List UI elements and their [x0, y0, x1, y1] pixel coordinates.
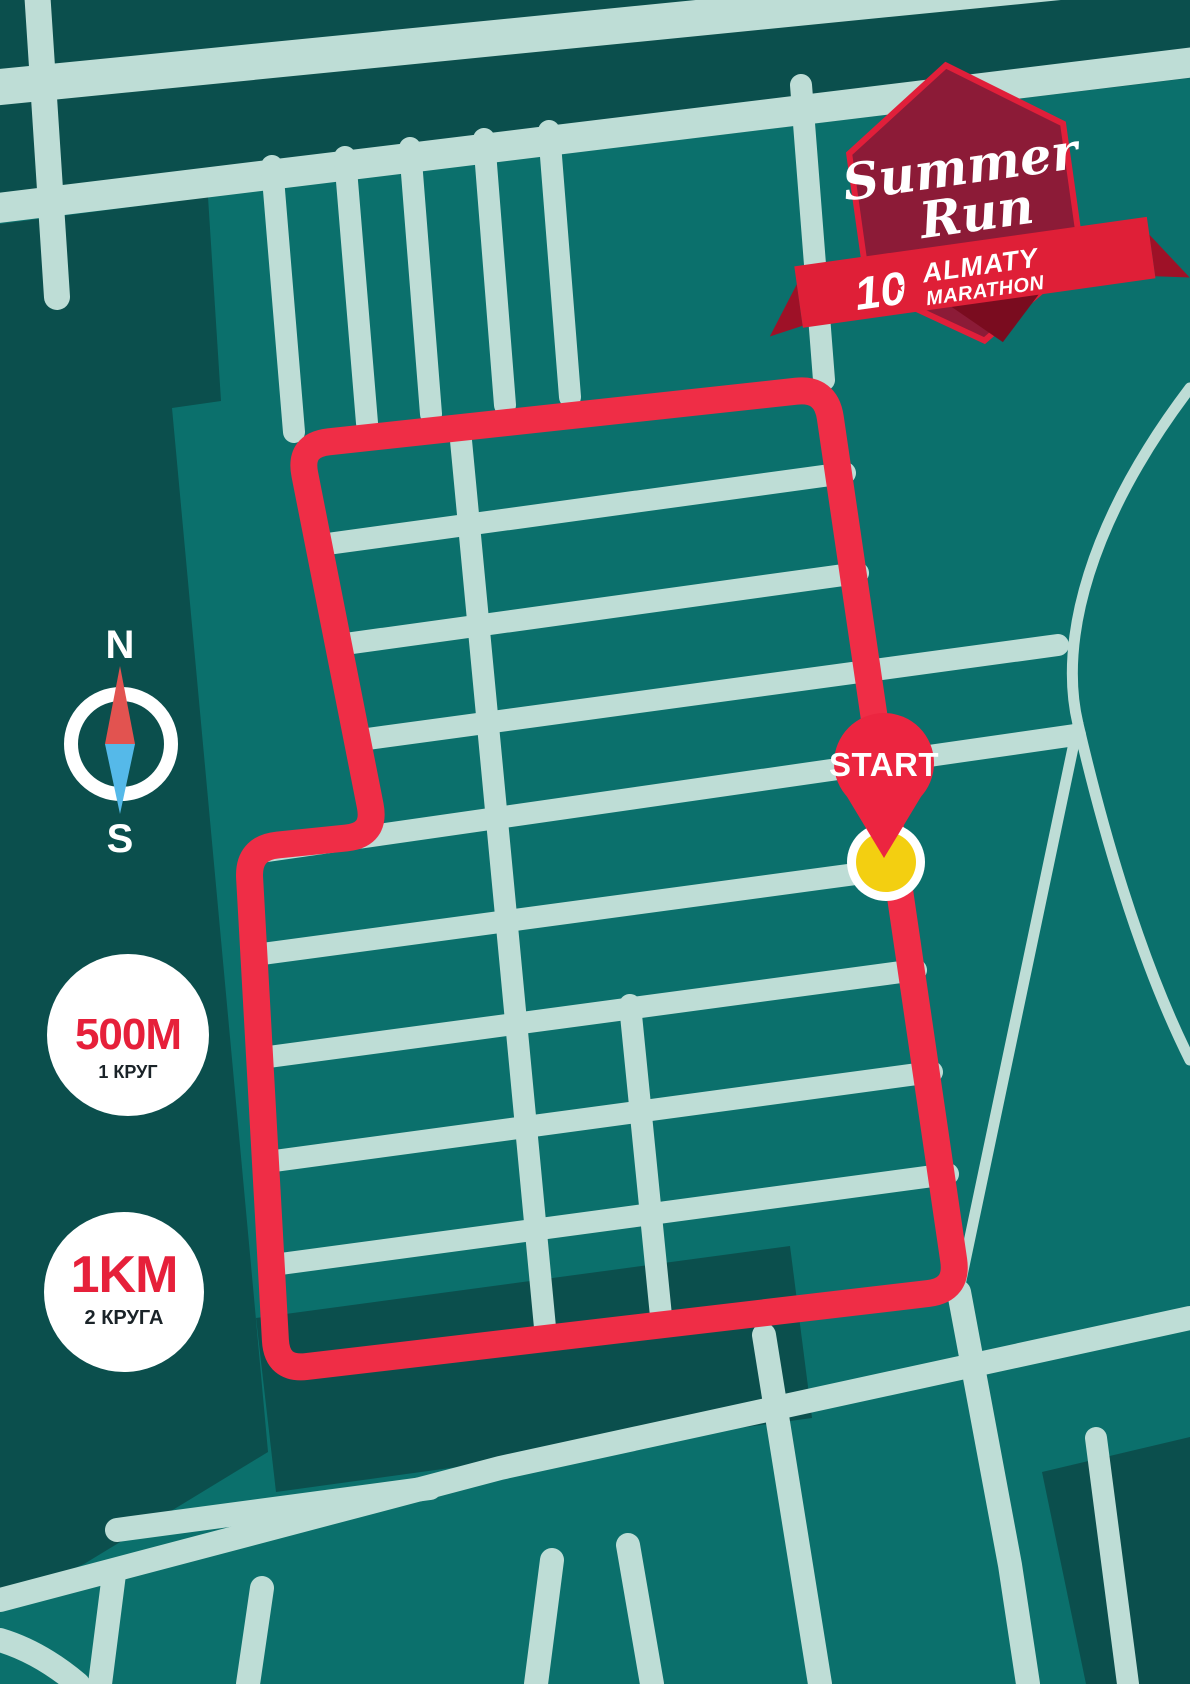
race-map-poster: START N S 500M 1 КРУГ 1KM 2 КРУГА Summer… — [0, 0, 1190, 1684]
badge-500m: 500M 1 КРУГ — [47, 954, 209, 1116]
start-pin-label: START — [829, 746, 939, 783]
badge-laps: 2 КРУГА — [85, 1307, 164, 1329]
badge-distance: 1KM — [71, 1246, 178, 1304]
badge-distance: 500M — [75, 1010, 181, 1059]
compass-north-label: N — [106, 623, 135, 667]
badge-laps: 1 КРУГ — [98, 1062, 157, 1082]
street — [100, 1574, 114, 1684]
compass-south-label: S — [107, 817, 134, 861]
street — [536, 1560, 552, 1684]
logo-star-icon: ★ — [890, 278, 906, 297]
map-canvas: START N S 500M 1 КРУГ 1KM 2 КРУГА Summer… — [0, 0, 1190, 1684]
street — [248, 1588, 262, 1684]
badge-1km: 1KM 2 КРУГА — [44, 1212, 204, 1372]
